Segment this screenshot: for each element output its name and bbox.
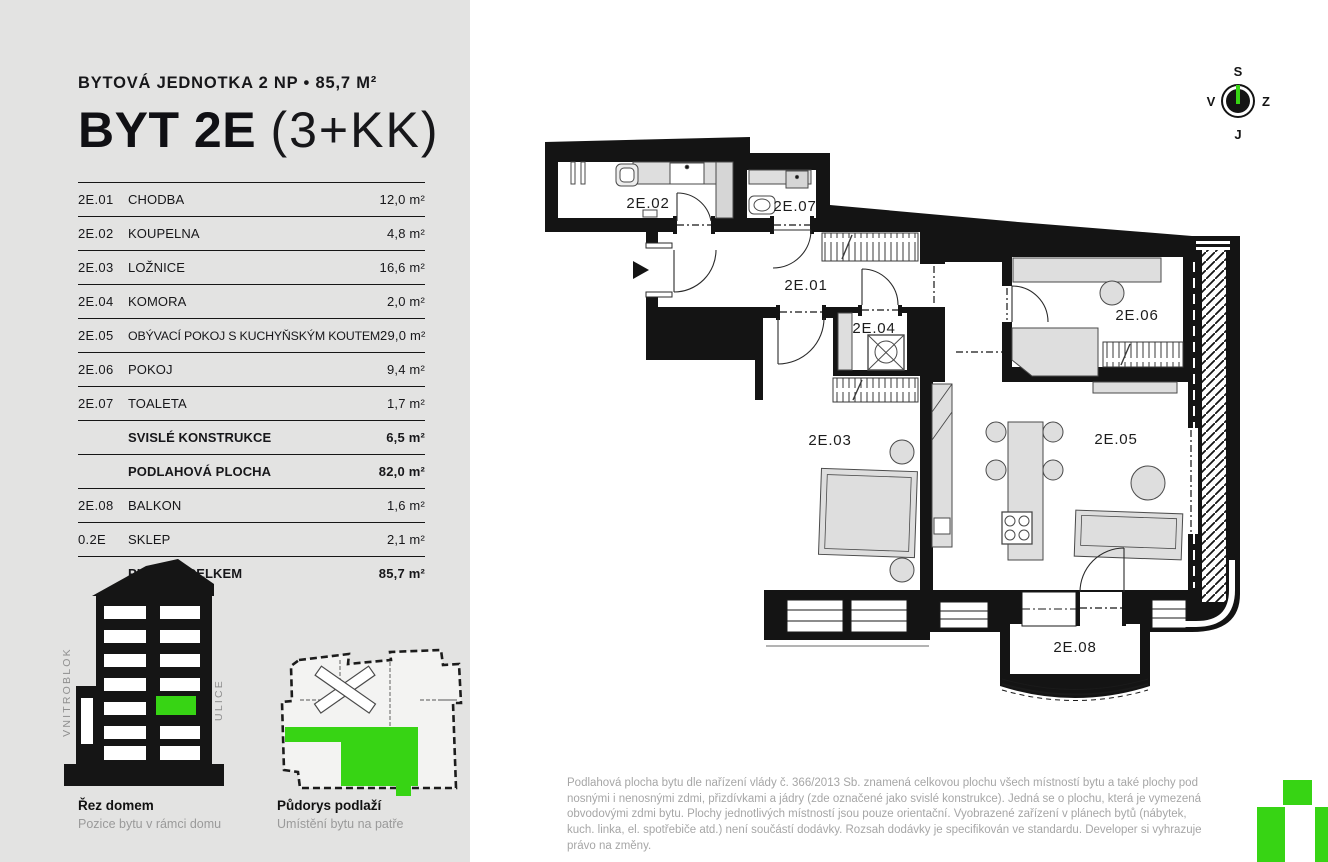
room-area: 82,0 m² — [379, 464, 425, 479]
room-area: 6,5 m² — [386, 430, 425, 445]
unit-title: BYT 2E — [78, 102, 256, 158]
compass-north: S — [1234, 64, 1243, 79]
room-name: SKLEP — [128, 532, 387, 547]
room-area: 12,0 m² — [380, 192, 425, 207]
room-code: 2E.02 — [78, 226, 128, 241]
room-area: 1,7 m² — [387, 396, 425, 411]
room-area: 4,8 m² — [387, 226, 425, 241]
page-title: BYT 2E (3+KK) — [78, 105, 425, 155]
compass-left: V — [1207, 94, 1216, 109]
plan-label-2e07: 2E.07 — [773, 198, 816, 215]
room-area: 16,6 m² — [380, 260, 425, 275]
room-area: 1,6 m² — [387, 498, 425, 513]
unit-layout: (3+KK) — [270, 102, 439, 158]
room-name: LOŽNICE — [128, 260, 380, 275]
room-name: CHODBA — [128, 192, 380, 207]
compass-south: J — [1234, 127, 1241, 142]
room-name: KOUPELNA — [128, 226, 387, 241]
room-code: 2E.07 — [78, 396, 128, 411]
disclaimer-text: Podlahová plocha bytu dle nařízení vlády… — [567, 776, 1207, 854]
room-name: BALKON — [128, 498, 387, 513]
table-row: 0.2ESKLEP2,1 m² — [78, 522, 425, 556]
label-ulice: ULICE — [213, 679, 225, 721]
table-row: 2E.01CHODBA12,0 m² — [78, 182, 425, 216]
section-caption-title: Řez domem — [78, 798, 268, 813]
table-row: 2E.05OBÝVACÍ POKOJ S KUCHYŇSKÝM KOUTEM29… — [78, 318, 425, 352]
floor-caption-subtitle: Umístění bytu na patře — [277, 817, 467, 831]
floor-location-diagram — [268, 640, 468, 805]
building-section-diagram: VNITROBLOK ULICE — [58, 556, 238, 796]
compass-right: Z — [1262, 94, 1270, 109]
room-code: 0.2E — [78, 532, 128, 547]
logo-block-right — [1315, 807, 1328, 862]
compass: S J V Z — [1198, 50, 1282, 155]
plan-label-2e04: 2E.04 — [852, 320, 895, 337]
room-code: 2E.06 — [78, 362, 128, 377]
room-living-passage — [945, 262, 1002, 384]
label-vnitroblok: VNITROBLOK — [61, 647, 73, 737]
table-row: SVISLÉ KONSTRUKCE6,5 m² — [78, 420, 425, 454]
room-code: 2E.05 — [78, 328, 128, 343]
logo-block-top — [1283, 780, 1312, 805]
table-row: PODLAHOVÁ PLOCHA82,0 m² — [78, 454, 425, 488]
table-row: 2E.03LOŽNICE16,6 m² — [78, 250, 425, 284]
table-row: 2E.07TOALETA1,7 m² — [78, 386, 425, 420]
table-row: 2E.08BALKON1,6 m² — [78, 488, 425, 522]
room-name: TOALETA — [128, 396, 387, 411]
section-caption-subtitle: Pozice bytu v rámci domu — [78, 817, 268, 831]
room-name: POKOJ — [128, 362, 387, 377]
plan-label-2e06: 2E.06 — [1115, 307, 1158, 324]
room-code: 2E.01 — [78, 192, 128, 207]
room-area: 2,0 m² — [387, 294, 425, 309]
plan-label-2e01: 2E.01 — [784, 277, 827, 294]
plan-label-2e03: 2E.03 — [808, 432, 851, 449]
table-row: 2E.02KOUPELNA4,8 m² — [78, 216, 425, 250]
room-name: KOMORA — [128, 294, 387, 309]
floor-plan: 2E.02 2E.07 2E.01 2E.04 2E.03 2E.05 2E.0… — [520, 110, 1280, 730]
plan-label-2e08: 2E.08 — [1053, 639, 1096, 656]
room-name: SVISLÉ KONSTRUKCE — [128, 430, 386, 445]
room-name: OBÝVACÍ POKOJ S KUCHYŇSKÝM KOUTEM — [128, 329, 380, 343]
room-code: 2E.03 — [78, 260, 128, 275]
logo-block-left — [1257, 807, 1285, 862]
plan-label-2e05: 2E.05 — [1094, 431, 1137, 448]
building-silhouette — [64, 559, 224, 786]
room-area: 29,0 m² — [380, 328, 425, 343]
room-name: PODLAHOVÁ PLOCHA — [128, 464, 379, 479]
plan-label-2e02: 2E.02 — [626, 195, 669, 212]
area-table: 2E.01CHODBA12,0 m² 2E.02KOUPELNA4,8 m² 2… — [78, 182, 425, 590]
room-code: 2E.08 — [78, 498, 128, 513]
section-caption: Řez domem Pozice bytu v rámci domu — [78, 798, 268, 831]
table-row: 2E.04KOMORA2,0 m² — [78, 284, 425, 318]
unit-kicker: BYTOVÁ JEDNOTKA 2 NP • 85,7 M² — [78, 74, 425, 93]
highlighted-unit-marker — [156, 696, 196, 715]
table-row: 2E.06POKOJ9,4 m² — [78, 352, 425, 386]
room-area: 9,4 m² — [387, 362, 425, 377]
room-area: 85,7 m² — [379, 566, 425, 581]
room-code: 2E.04 — [78, 294, 128, 309]
room-area: 2,1 m² — [387, 532, 425, 547]
